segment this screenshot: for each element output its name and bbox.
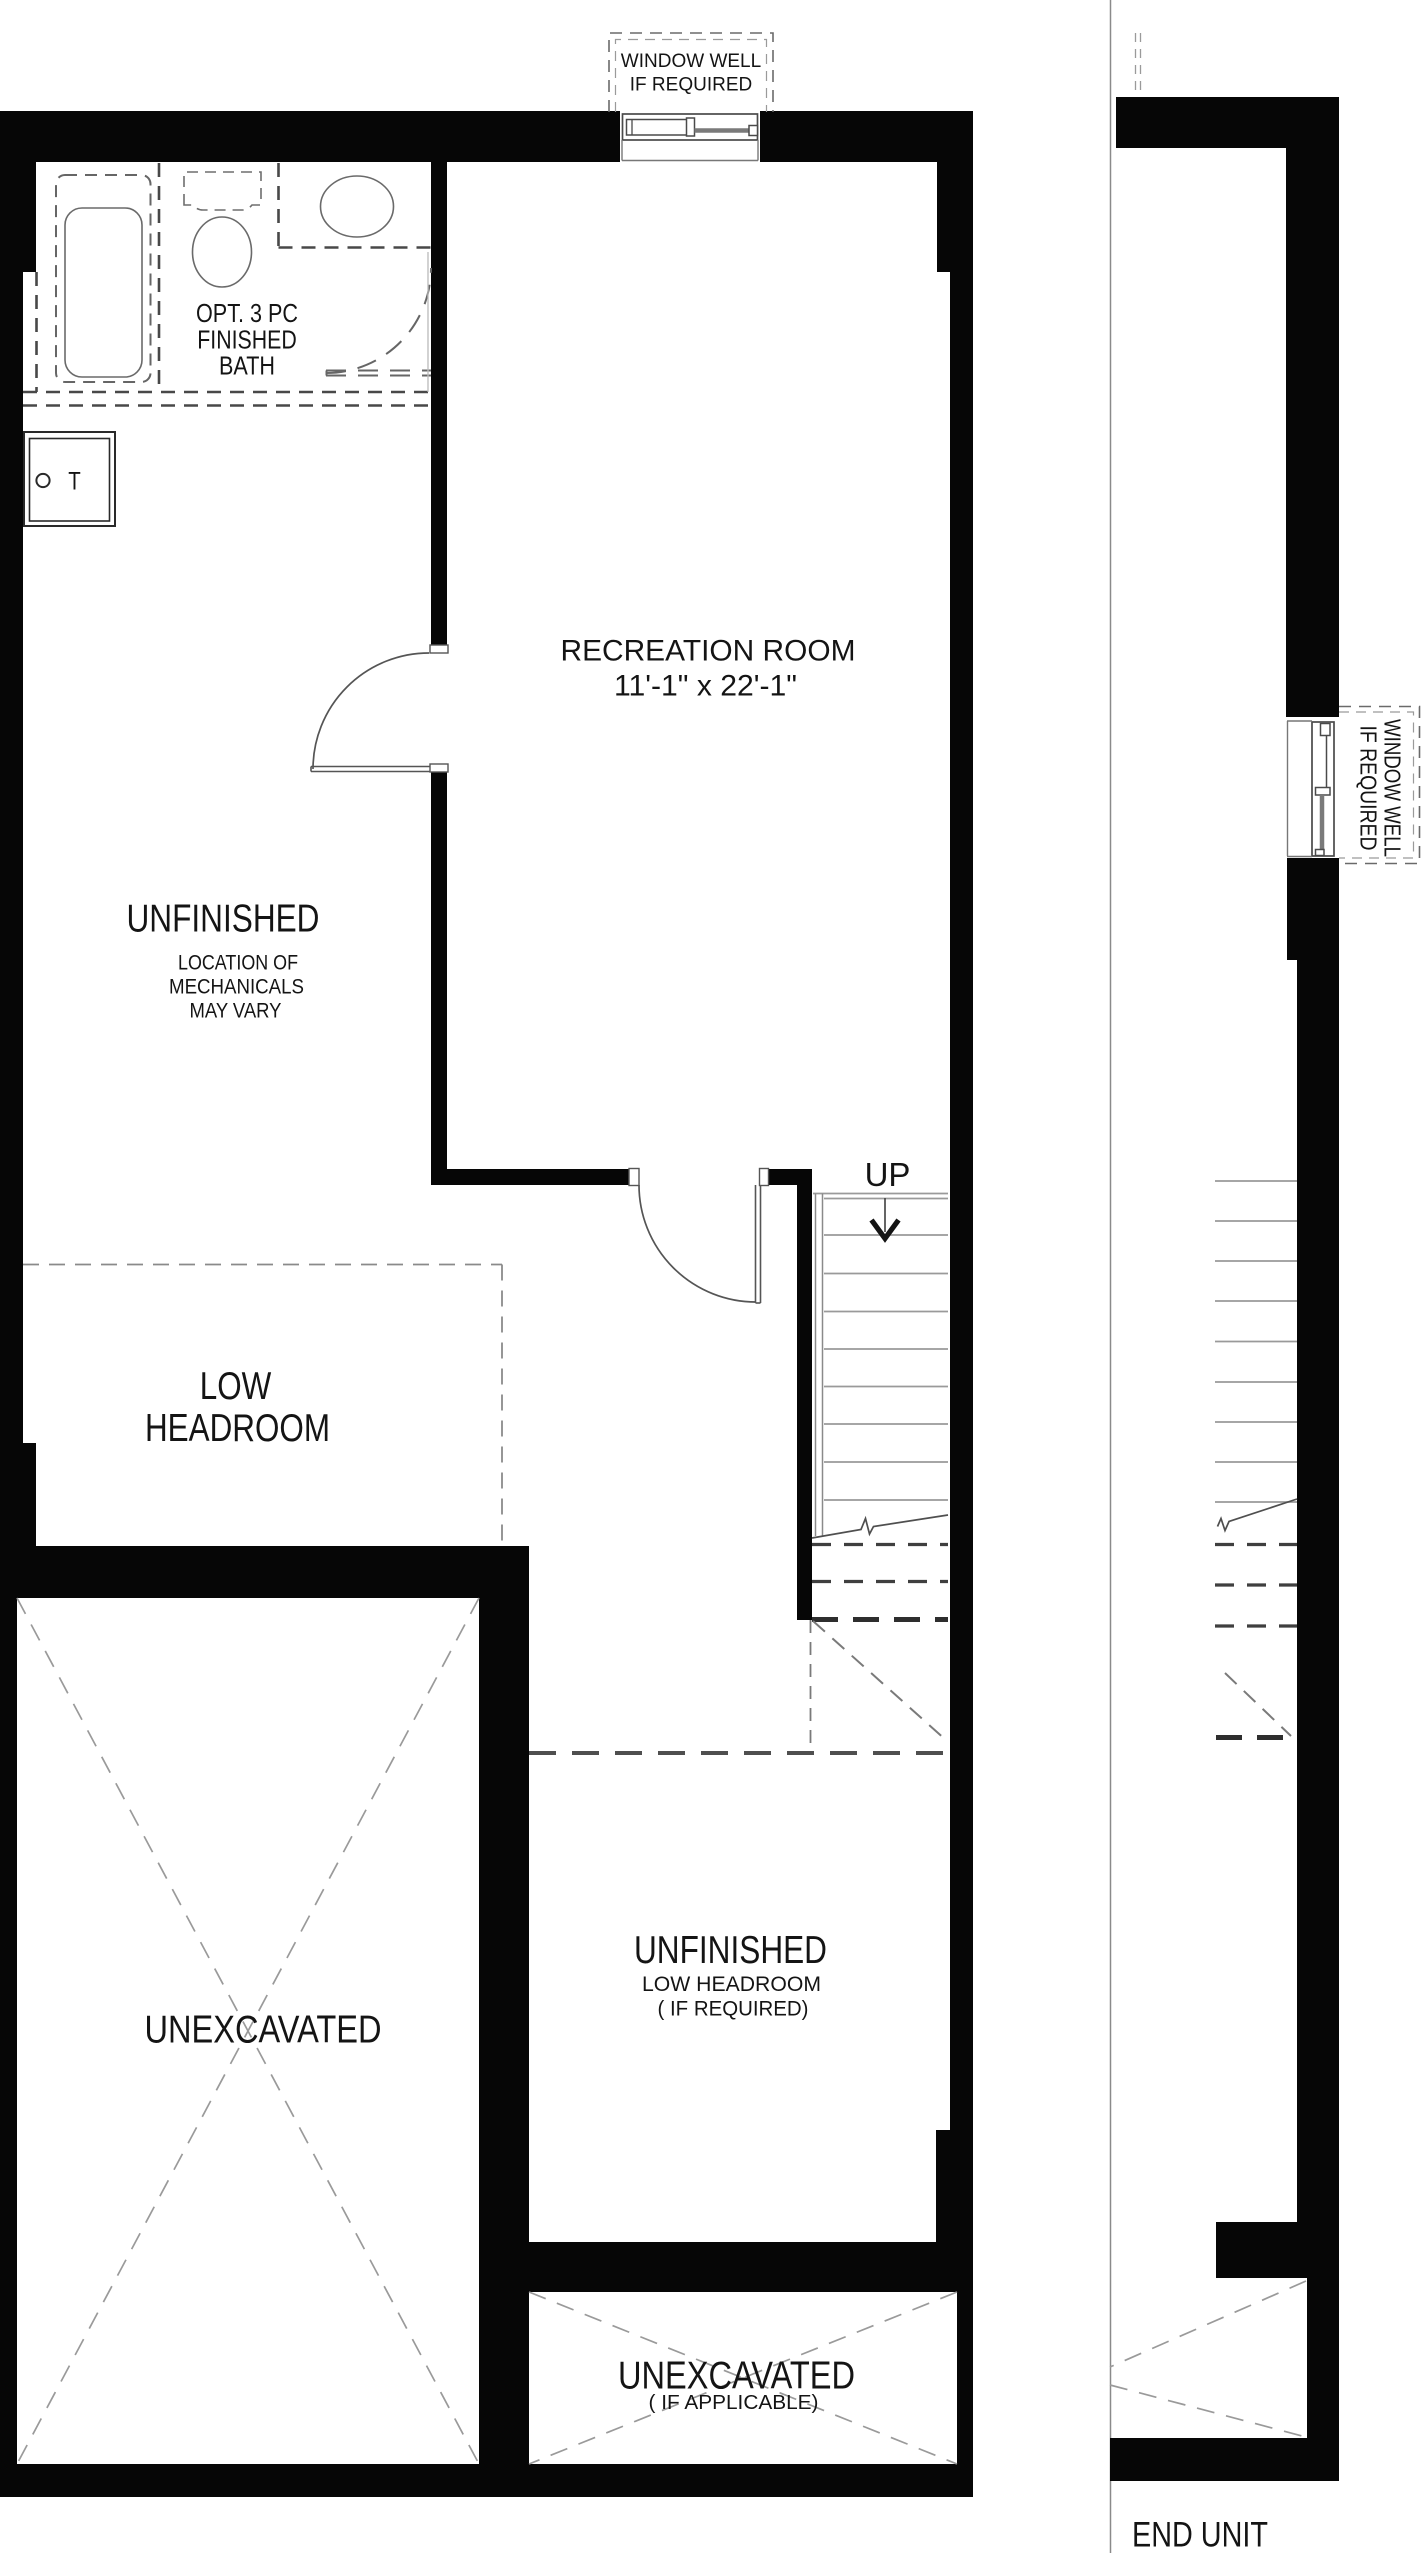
svg-text:UNFINISHED: UNFINISHED <box>634 1929 827 1972</box>
svg-text:UNFINISHED: UNFINISHED <box>127 898 320 941</box>
svg-text:END UNIT: END UNIT <box>1132 2516 1268 2555</box>
svg-text:HEADROOM: HEADROOM <box>145 1407 330 1450</box>
svg-text:FINISHED: FINISHED <box>197 327 297 355</box>
svg-text:MAY VARY: MAY VARY <box>190 999 282 1023</box>
svg-text:LOW: LOW <box>200 1365 272 1408</box>
svg-text:WINDOW WELL: WINDOW WELL <box>1380 719 1406 857</box>
svg-text:T: T <box>68 468 81 496</box>
svg-text:BATH: BATH <box>219 353 275 381</box>
svg-text:11'-1" x 22'-1": 11'-1" x 22'-1" <box>614 670 797 703</box>
svg-text:WINDOW WELL: WINDOW WELL <box>621 51 761 72</box>
svg-text:UNEXCAVATED: UNEXCAVATED <box>145 2009 382 2052</box>
svg-text:IF REQUIRED: IF REQUIRED <box>630 75 752 96</box>
svg-text:MECHANICALS: MECHANICALS <box>169 975 304 999</box>
svg-text:( IF APPLICABLE): ( IF APPLICABLE) <box>649 2391 819 2414</box>
svg-text:IF REQUIRED: IF REQUIRED <box>1355 726 1381 851</box>
svg-text:( IF REQUIRED): ( IF REQUIRED) <box>658 1998 809 2021</box>
svg-text:UP: UP <box>865 1156 911 1193</box>
svg-text:RECREATION ROOM: RECREATION ROOM <box>561 635 856 668</box>
svg-text:LOCATION OF: LOCATION OF <box>178 951 298 975</box>
svg-text:LOW HEADROOM: LOW HEADROOM <box>642 1973 821 1996</box>
svg-text:OPT. 3 PC: OPT. 3 PC <box>196 300 298 328</box>
